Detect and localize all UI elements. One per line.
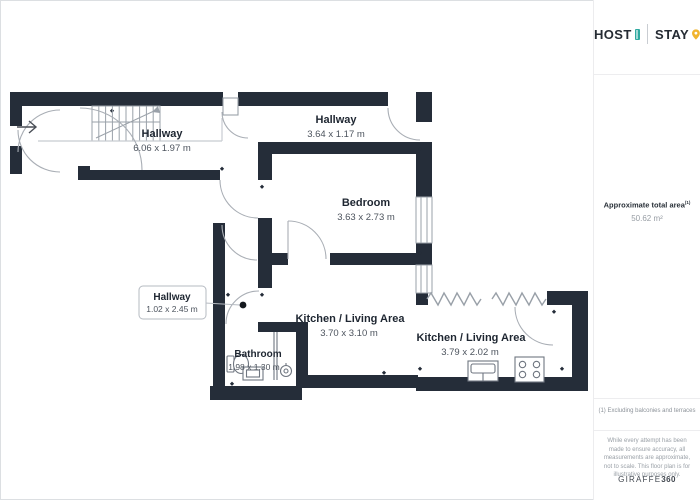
giraffe360-logo: GIRAFFE360 [594,475,700,484]
stove-burner [519,361,525,367]
room-name: Hallway [142,128,184,140]
removed-wall-zigzag [427,293,546,305]
map-pin-icon [692,28,700,41]
room-name: Kitchen / Living Area [416,332,526,344]
logo-divider [647,24,648,44]
logo-stay-text: STAY [655,27,689,42]
floor-edge-line [38,118,222,141]
door-icon [635,29,641,40]
area-footnote: (1) Excluding balconies and terraces [594,408,700,414]
floorplan-page: Hallway 6.06 x 1.97 m Hallway 3.64 x 1.1… [0,0,700,500]
info-sidebar: HOST STAY Approximate total area(1) 50.6… [593,0,700,500]
total-area-label-text: Approximate total area [604,201,685,210]
sidebar-divider [594,398,700,399]
stove-burner [533,371,539,377]
door-arc [220,180,258,218]
giraffe-360-text: 360 [661,475,676,484]
door-recess [223,98,238,115]
room-name: Bedroom [342,197,391,209]
door-arc [288,221,326,259]
room-dims: 1.02 x 2.45 m [146,304,198,314]
window [416,197,432,243]
door-arc [222,112,248,138]
door-arc [388,108,420,140]
floor-plan: Hallway 6.06 x 1.97 m Hallway 3.64 x 1.1… [0,0,593,500]
room-dims: 6.06 x 1.97 m [133,143,191,154]
stove-burner [533,361,539,367]
stove [515,357,544,382]
total-area-footnote-mark: (1) [685,200,691,205]
room-dims: 3.70 x 3.10 m [320,328,378,339]
logo-host-text: HOST [594,27,632,42]
room-dims: 3.64 x 1.17 m [307,129,365,140]
total-area-value: 50.62 m² [594,214,700,223]
room-dims: 3.63 x 2.73 m [337,212,395,223]
sidebar-divider [594,74,700,75]
disclaimer-text: While every attempt has been made to ens… [601,437,693,480]
window [416,265,432,293]
room-name: Hallway [316,114,358,126]
doors [18,98,553,345]
total-area-block: Approximate total area(1) 50.62 m² [594,200,700,223]
label-leader-dot [240,302,247,309]
door-arc [222,225,257,260]
total-area-label: Approximate total area(1) [594,200,700,210]
room-name: Bathroom [234,349,281,360]
giraffe-text: GIRAFFE [618,475,661,484]
washbasin [284,369,288,373]
room-name: Kitchen / Living Area [295,313,405,325]
sidebar-divider [594,430,700,431]
door-arc [18,110,60,152]
host-stay-logo: HOST STAY [594,24,700,44]
room-name: Hallway [153,292,191,303]
room-dims: 3.79 x 2.02 m [441,347,499,358]
sink [471,364,495,373]
door-arc [18,130,60,172]
stove-burner [519,371,525,377]
room-dims: 1.98 x 1.30 m [228,362,280,372]
